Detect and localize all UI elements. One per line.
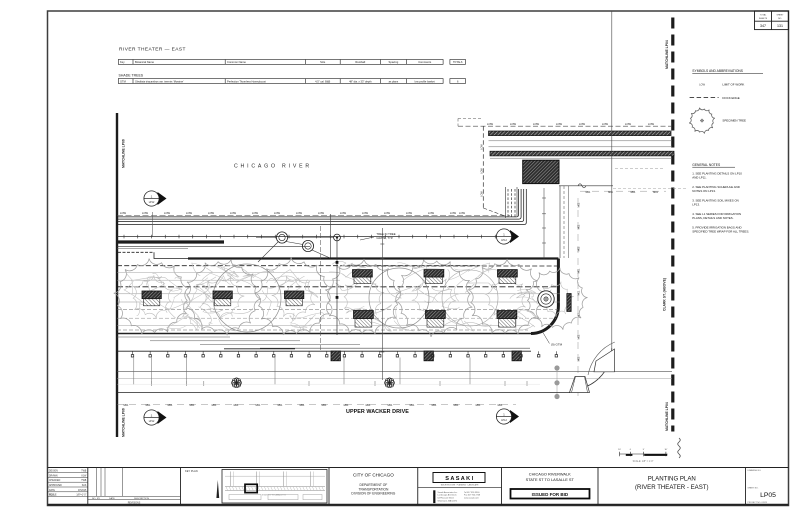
svg-text:LOW: LOW bbox=[274, 211, 280, 215]
svg-text:UPPER WACKER DRIVE: UPPER WACKER DRIVE bbox=[346, 409, 409, 415]
svg-text:PROJECT NO. 61525: PROJECT NO. 61525 bbox=[748, 502, 768, 504]
svg-text:SHEETS: SHEETS bbox=[759, 18, 768, 20]
svg-text:M01: M01 bbox=[476, 404, 481, 407]
svg-text:GENERAL NOTES: GENERAL NOTES bbox=[692, 163, 721, 167]
svg-text:M01: M01 bbox=[300, 404, 305, 407]
svg-text:LOW: LOW bbox=[428, 211, 434, 215]
svg-text:KJW: KJW bbox=[81, 475, 87, 477]
svg-text:LP12: LP12 bbox=[501, 419, 507, 422]
svg-text:Tel 617 926 3300: Tel 617 926 3300 bbox=[464, 492, 480, 494]
svg-text:M01: M01 bbox=[256, 404, 261, 407]
svg-text:LOW: LOW bbox=[459, 211, 465, 215]
svg-text:Size: Size bbox=[320, 60, 326, 64]
svg-text:M01: M01 bbox=[146, 404, 151, 407]
svg-text:(RIVER THEATER - EAST): (RIVER THEATER - EAST) bbox=[635, 484, 709, 491]
svg-text:LOW: LOW bbox=[318, 211, 324, 215]
svg-text:LOW: LOW bbox=[252, 211, 258, 215]
svg-text:LOW: LOW bbox=[340, 211, 346, 215]
svg-text:DRAWING NO.: DRAWING NO. bbox=[748, 469, 762, 472]
svg-text:LOW: LOW bbox=[699, 84, 705, 87]
svg-text:Botanical Name: Botanical Name bbox=[135, 60, 154, 64]
svg-text:SAS: SAS bbox=[82, 484, 87, 487]
svg-text:MATCHLINE LP04: MATCHLINE LP04 bbox=[665, 402, 669, 431]
svg-text:LOW: LOW bbox=[296, 211, 302, 215]
svg-text:LP13.: LP13. bbox=[692, 202, 700, 206]
svg-text:DRAWN: DRAWN bbox=[49, 474, 58, 477]
svg-text:LOW: LOW bbox=[120, 211, 126, 215]
svg-text:REVISIONS: REVISIONS bbox=[128, 502, 141, 504]
svg-text:NOTES ON LP13.: NOTES ON LP13. bbox=[692, 189, 716, 193]
svg-text:Sasaki Associates Inc.: Sasaki Associates Inc. bbox=[438, 491, 458, 494]
svg-text:Gleditsia triacanthos var. ine: Gleditsia triacanthos var. inermis 'Mora… bbox=[135, 79, 184, 83]
svg-text:LOW: LOW bbox=[510, 122, 516, 126]
svg-text:DESCRIPTION: DESCRIPTION bbox=[134, 498, 149, 500]
svg-text:Watertown, MA 02472: Watertown, MA 02472 bbox=[438, 500, 458, 503]
svg-text:low profile basket: low profile basket bbox=[415, 79, 435, 83]
svg-text:SPECIMEN TREE: SPECIMEN TREE bbox=[722, 119, 746, 123]
svg-text:4.5" cal. B&B: 4.5" cal. B&B bbox=[315, 79, 330, 83]
svg-text:www.sasaki.com: www.sasaki.com bbox=[464, 498, 479, 500]
svg-text:· ARCHITECTURE · PLANNING ·: · ARCHITECTURE · PLANNING · LANDSCAPE bbox=[440, 484, 479, 487]
svg-text:DOCK EDGE: DOCK EDGE bbox=[722, 96, 739, 100]
svg-text:as plans: as plans bbox=[389, 79, 399, 83]
svg-text:FILE: FILE bbox=[49, 495, 54, 497]
svg-text:LOW: LOW bbox=[450, 211, 456, 215]
svg-text:M01: M01 bbox=[366, 404, 371, 407]
svg-text:Spacing: Spacing bbox=[389, 60, 399, 64]
svg-text:CHICAGO RIVER: CHICAGO RIVER bbox=[234, 164, 312, 170]
svg-text:M01: M01 bbox=[190, 404, 195, 407]
svg-text:M01: M01 bbox=[124, 404, 129, 407]
svg-text:LOW: LOW bbox=[625, 122, 631, 126]
svg-text:GTM: GTM bbox=[120, 79, 126, 83]
svg-text:CHECKED: CHECKED bbox=[49, 480, 61, 482]
svg-text:LIMIT OF WORK: LIMIT OF WORK bbox=[722, 83, 744, 87]
svg-text:LOW: LOW bbox=[362, 211, 368, 215]
svg-text:APPROVED: APPROVED bbox=[49, 484, 62, 487]
svg-text:(9) GTM: (9) GTM bbox=[551, 342, 563, 346]
svg-text:SHADE TREES: SHADE TREES bbox=[119, 73, 144, 77]
svg-text:M01: M01 bbox=[498, 404, 503, 407]
svg-text:M01: M01 bbox=[168, 404, 173, 407]
svg-text:NO.: NO. bbox=[778, 18, 782, 20]
svg-text:48" dia. x 33" depth: 48" dia. x 33" depth bbox=[349, 79, 372, 83]
svg-text:Comments: Comments bbox=[418, 60, 432, 64]
svg-text:M01: M01 bbox=[631, 191, 636, 194]
svg-text:Landscape Architects: Landscape Architects bbox=[438, 494, 457, 497]
svg-text:LOW: LOW bbox=[164, 211, 170, 215]
svg-text:LOW: LOW bbox=[384, 211, 390, 215]
svg-text:DATE: DATE bbox=[49, 489, 55, 492]
svg-text:DATE: DATE bbox=[109, 497, 115, 500]
svg-text:LOW: LOW bbox=[142, 211, 148, 215]
svg-text:DESIGN: DESIGN bbox=[49, 471, 58, 473]
svg-text:AND LP11.: AND LP11. bbox=[692, 175, 706, 179]
svg-text:131: 131 bbox=[777, 24, 783, 28]
svg-text:LP12: LP12 bbox=[149, 201, 155, 204]
svg-text:M01: M01 bbox=[578, 268, 581, 273]
svg-text:PLANTING PLAN: PLANTING PLAN bbox=[648, 476, 696, 483]
svg-text:M01: M01 bbox=[454, 404, 459, 407]
svg-text:Fax 617 924 2748: Fax 617 924 2748 bbox=[464, 495, 481, 497]
svg-text:347: 347 bbox=[760, 24, 766, 28]
svg-text:TOTAL: TOTAL bbox=[760, 14, 767, 17]
svg-text:SHEET NO.: SHEET NO. bbox=[748, 488, 759, 490]
svg-text:LOW: LOW bbox=[186, 211, 192, 215]
svg-text:M01: M01 bbox=[608, 191, 613, 194]
svg-text:M01: M01 bbox=[278, 404, 283, 407]
svg-text:M01: M01 bbox=[344, 404, 349, 407]
svg-text:LP05: LP05 bbox=[760, 492, 776, 499]
svg-text:LOW: LOW bbox=[602, 122, 608, 126]
svg-text:Rootball: Rootball bbox=[355, 60, 365, 64]
svg-text:LOW: LOW bbox=[406, 211, 412, 215]
svg-text:MATCHLINE LP04: MATCHLINE LP04 bbox=[665, 40, 669, 69]
svg-text:M01: M01 bbox=[388, 404, 393, 407]
svg-text:LOW: LOW bbox=[208, 211, 214, 215]
svg-text:64 Pleasant Street: 64 Pleasant Street bbox=[438, 497, 455, 500]
svg-text:MATCHLINE LP06: MATCHLINE LP06 bbox=[122, 408, 126, 437]
svg-text:LOW: LOW bbox=[579, 122, 585, 126]
svg-text:M01: M01 bbox=[432, 404, 437, 407]
svg-text:M01: M01 bbox=[653, 191, 658, 194]
svg-text:LOW: LOW bbox=[481, 191, 483, 197]
svg-text:M01: M01 bbox=[578, 202, 581, 207]
svg-text:MATCHLINE LP06: MATCHLINE LP06 bbox=[122, 139, 126, 168]
svg-text:CHICAGO RIVERWALK: CHICAGO RIVERWALK bbox=[529, 471, 571, 476]
svg-text:Key: Key bbox=[120, 60, 125, 64]
svg-text:M01: M01 bbox=[578, 356, 581, 361]
svg-text:KEY PLAN: KEY PLAN bbox=[185, 469, 198, 473]
svg-text:LP12: LP12 bbox=[149, 420, 155, 423]
svg-text:M01: M01 bbox=[322, 404, 327, 407]
svg-text:TWB: TWB bbox=[81, 480, 87, 482]
svg-text:M01: M01 bbox=[212, 404, 217, 407]
svg-text:LOW: LOW bbox=[481, 144, 483, 150]
svg-text:LOW: LOW bbox=[533, 122, 539, 126]
svg-text:S A S A K I: S A S A K I bbox=[445, 476, 474, 482]
svg-text:LOW: LOW bbox=[648, 122, 654, 126]
svg-text:SPECIFIED TREE WRAP FOR ALL TR: SPECIFIED TREE WRAP FOR ALL TREES. bbox=[692, 229, 749, 233]
svg-text:Perfection Thornless Honeylocu: Perfection Thornless Honeylocust bbox=[227, 79, 266, 83]
svg-text:LP12: LP12 bbox=[501, 239, 507, 242]
svg-text:1/8"=1'-0": 1/8"=1'-0" bbox=[76, 495, 86, 497]
svg-text:RIVER THEATER — EAST: RIVER THEATER — EAST bbox=[119, 47, 186, 53]
svg-text:SCALE: 1/8" = 1'-0": SCALE: 1/8" = 1'-0" bbox=[633, 460, 654, 463]
svg-text:M01: M01 bbox=[578, 290, 581, 295]
svg-text:STATE ST TO LASALLE ST: STATE ST TO LASALLE ST bbox=[526, 477, 575, 482]
svg-text:TOTALS: TOTALS bbox=[453, 61, 463, 64]
svg-text:GRATE, TYP.: GRATE, TYP. bbox=[376, 236, 393, 240]
svg-text:CLARK ST. (ABOVE): CLARK ST. (ABOVE) bbox=[663, 278, 667, 311]
svg-text:SYMBOLS AND ABBREVIATIONS: SYMBOLS AND ABBREVIATIONS bbox=[692, 69, 743, 73]
svg-text:PLANS, DETAILS AND NOTES.: PLANS, DETAILS AND NOTES. bbox=[692, 216, 733, 220]
svg-text:M01: M01 bbox=[578, 334, 581, 339]
svg-text:M01: M01 bbox=[578, 246, 581, 251]
svg-text:LOW: LOW bbox=[481, 168, 483, 174]
svg-text:LOW: LOW bbox=[556, 122, 562, 126]
svg-text:M01: M01 bbox=[410, 404, 415, 407]
svg-text:TWB: TWB bbox=[81, 471, 87, 473]
svg-text:Common Name: Common Name bbox=[227, 60, 246, 64]
svg-text:07/2015: 07/2015 bbox=[78, 490, 87, 492]
svg-text:ISSUED FOR BID: ISSUED FOR BID bbox=[532, 492, 569, 497]
svg-text:DIVISION OF ENGINEERING: DIVISION OF ENGINEERING bbox=[351, 492, 395, 496]
svg-text:CITY OF CHICAGO: CITY OF CHICAGO bbox=[353, 472, 394, 477]
svg-text:LOW: LOW bbox=[230, 211, 236, 215]
svg-text:M01: M01 bbox=[234, 404, 239, 407]
svg-text:LOW: LOW bbox=[487, 122, 493, 126]
svg-text:M01: M01 bbox=[586, 191, 591, 194]
svg-text:M01: M01 bbox=[578, 224, 581, 229]
svg-text:STATE ST. TO LASALLE ST.: STATE ST. TO LASALLE ST. bbox=[262, 493, 287, 496]
svg-text:SHEET: SHEET bbox=[777, 15, 785, 17]
svg-text:NO.: NO. bbox=[92, 498, 96, 500]
